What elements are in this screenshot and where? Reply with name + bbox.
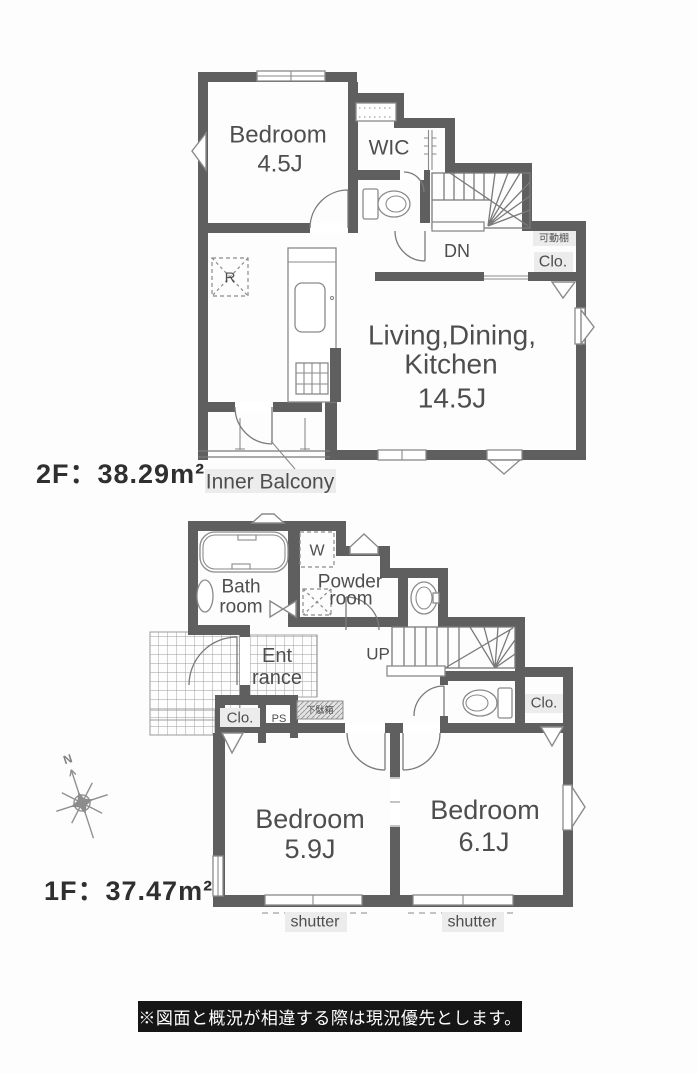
washbasin-icon xyxy=(411,582,439,614)
floorplan-page: R Bedroom 4.5J WIC DN 可動棚 Clo. Living,Di… xyxy=(0,0,698,1074)
bath-window xyxy=(197,580,213,612)
kitchen-counter-icon xyxy=(288,248,341,402)
wic-label: WIC xyxy=(369,137,410,160)
bedroom-right-label: Bedroom xyxy=(430,795,540,825)
disclaimer-text: ※図面と概況が相違する際は現況優先とします。 xyxy=(138,1004,521,1029)
bath-folding-door-icon xyxy=(270,601,296,617)
bath-label-line1: Bath xyxy=(221,577,260,598)
bedroom-2f-label: Bedroom xyxy=(229,122,326,149)
vent-markers-2f xyxy=(192,133,594,474)
toilet-1f-icon xyxy=(463,688,512,718)
entrance-label-line2: rance xyxy=(252,667,302,689)
wic-folding-door xyxy=(424,130,437,170)
floor2-area-label: 2F：38.29m² xyxy=(36,452,205,491)
ps-label: PS xyxy=(272,713,287,725)
ldk-label-line2: Kitchen xyxy=(404,349,497,380)
stairs-dn-label: DN xyxy=(444,241,470,261)
washer-label: W xyxy=(309,543,325,560)
shutter-left-label: shutter xyxy=(291,914,341,931)
stairs-down-2f xyxy=(432,173,530,231)
disclaimer-banner: ※図面と概況が相違する際は現況優先とします。 xyxy=(138,1001,522,1032)
closet-2f-label: Clo. xyxy=(539,254,567,271)
closet-right-label: Clo. xyxy=(531,695,558,712)
ldk-size-label: 14.5J xyxy=(418,383,487,414)
toilet-icon xyxy=(363,189,410,219)
stairs-up-label: UP xyxy=(366,645,390,664)
ldk-label-line1: Living,Dining, xyxy=(368,320,536,351)
bedroom-left-label: Bedroom xyxy=(255,804,365,834)
bath-label-line2: room xyxy=(219,597,262,618)
shoe-cabinet-label: 下駄箱 xyxy=(306,704,333,715)
floor1-area-label: 1F：37.47m² xyxy=(44,869,213,908)
compass-north-label: N xyxy=(61,751,74,767)
compass-icon: N xyxy=(47,748,117,843)
entrance-label-line1: Ent xyxy=(262,645,292,667)
shutter-right-label: shutter xyxy=(448,914,498,931)
refrigerator-label: R xyxy=(225,270,236,287)
floor-2f-plan: R Bedroom 4.5J WIC DN 可動棚 Clo. Living,Di… xyxy=(185,55,595,500)
closet-left-label: Clo. xyxy=(227,710,254,727)
bathtub-icon xyxy=(200,532,288,572)
movable-shelf-label: 可動棚 xyxy=(539,232,569,245)
stairs-up-1f xyxy=(387,627,515,676)
bedroom-left-size: 5.9J xyxy=(284,834,335,864)
balcony-edge xyxy=(198,418,330,457)
bedroom-right-size: 6.1J xyxy=(458,827,509,857)
refrigerator-space: R xyxy=(212,258,248,296)
inner-balcony-label: Inner Balcony xyxy=(206,471,335,494)
powder-label-line2: room xyxy=(329,589,372,610)
balcony-leader-line xyxy=(271,441,295,469)
bedroom-2f-size: 4.5J xyxy=(257,151,302,178)
